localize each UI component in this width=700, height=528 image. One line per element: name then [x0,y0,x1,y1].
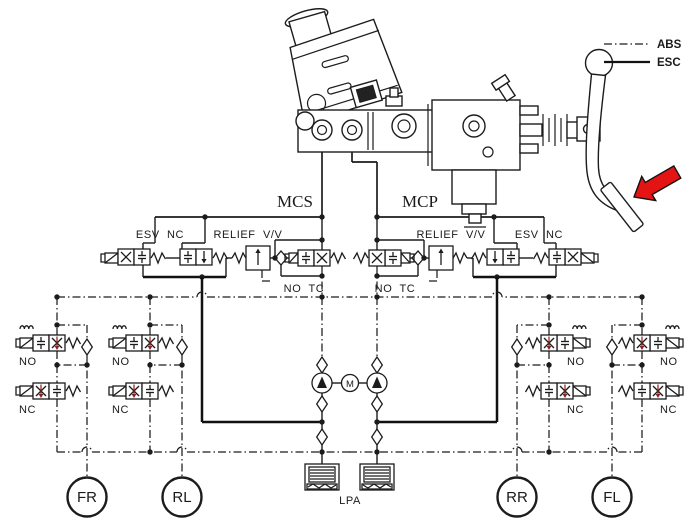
label-nc: NC [567,404,584,416]
wheel-label-fl: FL [603,489,621,506]
check-valve-icon [372,357,383,373]
esv-valve [101,249,232,280]
spring-icon [331,253,346,263]
junction-dot [546,449,551,454]
spring-icon [619,386,634,396]
junction-dot [147,449,152,454]
labels: MCS MCP ESV NC ESV NC RELIEF V/V RELIEF … [19,192,678,507]
hydraulic-circuit [16,140,683,517]
booster-boss [463,115,485,137]
wheel-outlet-valve-nc [109,383,174,399]
damper-icon [113,326,126,329]
label-no: NO [19,356,37,368]
cylinder-boss [392,114,416,138]
reservoir [275,0,403,124]
spring-icon [159,338,174,348]
label-nc: NC [660,404,677,416]
accumulator-lpa [360,464,394,490]
schematic-canvas: ABS ESC MCS MCP ESV NC ESV NC RELIEF V/V… [0,0,700,528]
relief-valve [232,246,270,281]
brake-hydraulic-diagram: ABS ESC MCS MCP ESV NC ESV NC RELIEF V/V… [0,0,700,528]
label-mcp: MCP [402,192,438,211]
junction-dot [272,255,277,260]
pedal-press-arrow-icon [627,160,684,209]
pushrod [520,124,542,136]
junction-dot [421,255,426,260]
right-circuit [349,214,683,516]
spring-icon [526,338,541,348]
esv-valve [467,249,598,280]
bellows [543,114,567,146]
damper-icon [666,326,679,329]
legend-abs-label: ABS [657,39,682,51]
label-lpa: LPA [339,495,361,507]
relief-valve [429,246,467,281]
pump-icon [312,373,332,393]
spring-icon [453,253,468,263]
label-nc: NC [19,404,36,416]
label-no: NO [112,356,130,368]
check-valve-icon [372,429,383,445]
check-valve-icon [317,429,328,445]
booster-stub [520,144,538,153]
valve-block [452,170,496,204]
wheel-outlet-valve-nc [619,383,684,399]
label-mcs: MCS [277,192,313,211]
pump-icon [367,373,387,393]
label-no: NO [567,356,585,368]
label-motor: M [346,379,354,390]
legend-esc-label: ESC [657,57,681,69]
outlet-port-2 [342,120,362,140]
wheel-outlet-valve-nc [526,383,591,399]
wheel-label-fr: FR [77,489,97,506]
label-notc-right: NO TC [375,283,416,295]
label-relief-right: RELIEF V/V [417,229,486,241]
master-cylinder-assembly [275,0,684,232]
label-notc-left: NO TC [284,283,325,295]
wheel-inlet-valve-no [619,326,684,351]
check-valve-icon [177,339,188,355]
check-valve-icon [372,396,383,412]
legend: ABS ESC [604,39,682,69]
wheel-inlet-valve-no [16,326,81,351]
wheel-label-rr: RR [506,489,528,506]
tc-valve [285,250,346,266]
wheel-outlet-valve-nc [16,383,81,399]
damper-icon [20,326,33,329]
brake-pedal [586,50,644,233]
spring-icon [66,338,81,348]
left-circuit [16,214,350,516]
spring-icon [534,253,549,263]
mounting-boss [296,112,314,130]
check-valve-icon [607,339,618,355]
spring-icon [232,253,247,263]
damper-icon [573,326,586,329]
tc-valve [354,250,415,266]
label-no: NO [660,356,678,368]
check-valve-icon [317,396,328,412]
wheel-inlet-valve-no [109,326,174,351]
label-esv-left: ESV NC [136,229,184,241]
wheel-label-rl: RL [172,489,191,506]
spring-icon [151,253,166,263]
check-valve-icon [82,339,93,355]
spring-icon [66,386,81,396]
check-valve-icon [317,357,328,373]
label-relief-left: RELIEF V/V [214,229,283,241]
spring-icon [619,338,634,348]
outlet-port-1 [312,120,332,140]
check-valve-icon [512,339,523,355]
label-nc: NC [112,404,129,416]
booster-stub [520,106,538,115]
label-esv-right: ESV NC [515,229,563,241]
wheel-inlet-valve-no [526,326,591,351]
accumulator-lpa [305,464,339,490]
bleed-screw [469,214,481,223]
angled-fitting [492,75,518,103]
spring-icon [354,253,369,263]
spring-icon [526,386,541,396]
spring-icon [159,386,174,396]
